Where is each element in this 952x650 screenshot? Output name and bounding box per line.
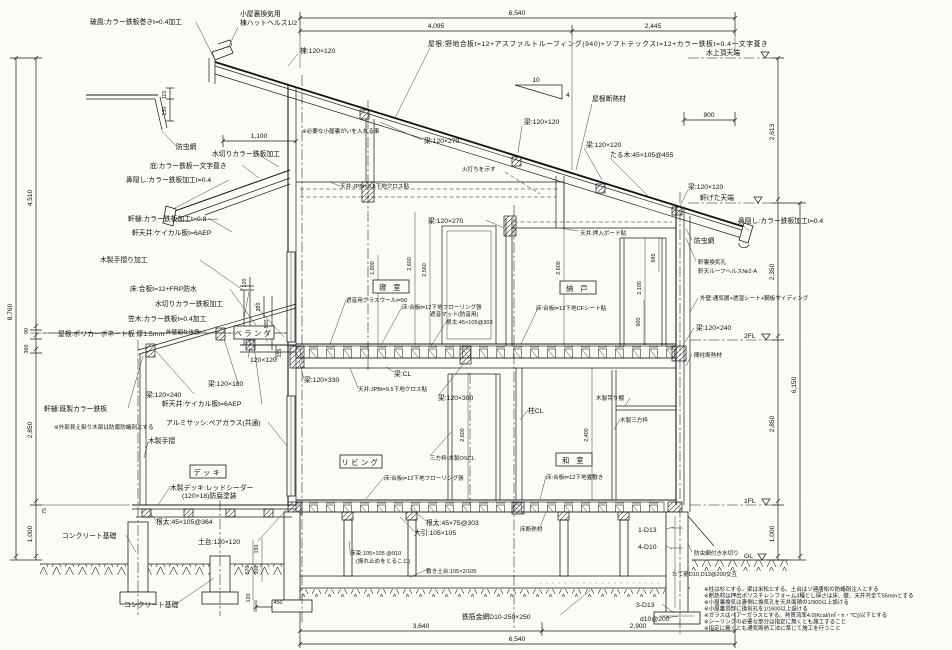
label-tatekin: たて筋D10,D13@200交互 — [672, 570, 737, 578]
level-nokigeta: 軒げた天端 — [700, 193, 734, 202]
label-kasagi: 笠木:カラー鉄板t=0.4加工 — [128, 314, 207, 323]
label-shikidodai: 敷き土台:105×2/105 — [426, 567, 477, 575]
dim-found-570: 570 — [245, 566, 251, 575]
label-beam-120x300: 梁:120×300 — [438, 393, 474, 402]
level-gl: GL — [744, 553, 753, 560]
label-beam-120x270-b: 梁:120×270 — [428, 216, 464, 225]
dim-left-8760: 8,760 — [7, 303, 14, 320]
label-nokitenjo-deck: 軒天井:ケイカル板t=6AEP — [162, 399, 242, 408]
label-floor-2f-1: 床:合板t=12下地フローリング張 — [402, 303, 482, 311]
label-deck-spec-1: 木製デッキ:レッドシーダー — [170, 483, 254, 492]
label-beam-120x240-right: 梁:120×240 — [696, 323, 732, 332]
label-beam-120x240-left: 梁:120×240 — [146, 390, 182, 399]
label-tatami-floor: 床:合板t=12下地畳敷き — [546, 473, 603, 481]
label-post-120x120: 120×120 — [250, 357, 277, 364]
note-line-2: ※断熱材は押出ポリスチレンフォーム3種とし厚さは床、壁、天井共全て55mmとする — [704, 592, 913, 600]
label-gaiheki-note: 外壁廻り注意 — [166, 328, 200, 336]
dim-canopy-115: 115 — [162, 91, 168, 100]
room-living: リビング — [342, 458, 381, 467]
label-nokitenjo-left: 軒天井:ケイカル板t=6AEP — [132, 228, 212, 237]
label-koyaura-vent-2: 棟ハットヘルス1/2 — [240, 18, 297, 27]
label-beam-120x120-b: 梁:120×120 — [586, 140, 622, 149]
label-roof-insulation: 屋根断熱材 — [592, 94, 626, 103]
room-nando: 納 戸 — [566, 284, 590, 293]
label-mizukiri-balcony: 水切りカラー鉄板加工 — [155, 299, 223, 308]
label-d10-200: d10@200 — [640, 616, 670, 623]
level-1fl: 1FL — [744, 498, 756, 505]
label-nokiura-1: 軒裏換気孔 — [698, 258, 726, 266]
dim-2f-2650: 2,650 — [407, 257, 413, 271]
dim-2f-2560: 2,560 — [422, 263, 428, 277]
dim-bottom-3640: 3,640 — [413, 623, 430, 630]
dim-2f-2600: 2,600 — [556, 261, 562, 275]
label-concrete-1: コンクリート基礎 — [62, 531, 117, 540]
dim-living-2600: 2,600 — [460, 428, 466, 442]
label-beam-120x180: 梁:120×180 — [208, 379, 244, 388]
dim-right-6150: 6,150 — [791, 376, 798, 393]
note-line-3: ※小屋裏換気は妻側に換気孔を天井面積の1/900以上設ける — [704, 598, 849, 606]
label-hanakakushi-right: 鼻隠し:カラー鉄板加工t=0.4 — [738, 216, 823, 225]
dim-left-75: 75 — [42, 508, 48, 514]
label-neda-4575: 根太:45×75@303 — [426, 518, 479, 527]
dim-bottom-2900: 2,900 — [630, 623, 647, 630]
dim-left-1000: 1,000 — [27, 525, 34, 542]
label-tesuri-kakou: 木製手摺り加工 — [100, 255, 148, 264]
dim-canopy-1100: 1,100 — [251, 133, 268, 140]
label-taruki: たる木:45×105@455 — [610, 150, 674, 159]
dim-top-4095: 4,095 — [428, 23, 445, 30]
level-mizukami: 水上頂天端 — [706, 48, 740, 57]
note-line-5: ※ガラスはペアーガラスとする。熱貫流率4.0(Kcal/(㎡・h・℃))以下とす… — [704, 611, 887, 619]
note-line-1: ※柱は杉とする。梁は米松とする。土台はソ連唐松の防蟻剤注入とする — [704, 585, 879, 593]
dim-right-1000: 1,000 — [769, 525, 776, 542]
label-ohiki: 大引:105×105 — [414, 528, 456, 537]
label-balcony-floor: 床:合板t=12+FRP防水 — [130, 284, 197, 293]
label-roof-spec: 屋根:野地合板t=12+アスファルトルーフィング(940)+ソフトテックスt=1… — [428, 39, 768, 48]
label-beam-cl: 梁:CL — [394, 369, 412, 378]
label-floor-cf: 床:合板t=12下地CFシート貼 — [536, 304, 607, 312]
label-bochumou-left: 防虫網 — [176, 142, 197, 151]
dim-found-150: 150 — [254, 545, 260, 554]
dim-canopy-230: 230 — [162, 107, 168, 116]
dim-balcony-800: 800 — [264, 320, 270, 329]
label-ext-wood-note: ※外部見え掛り木部は防腐防蟻剤とする — [54, 423, 154, 431]
dim-washitsu-2400: 2,400 — [584, 428, 590, 442]
label-beam-120x120-a: 梁:120×120 — [524, 117, 560, 126]
dim-balcony-120: 120 — [242, 279, 248, 288]
note-line-4: ※小屋裏頂部に換気孔を1/1600以上設ける — [704, 605, 808, 613]
label-mesh: 鉄筋金網D10-250×250 — [462, 612, 531, 621]
label-gaiheki: 外壁:通気層+透湿シート+鋼板サイディング — [700, 294, 809, 302]
label-sash: アルミサッシ:ペアガラス(共通) — [166, 418, 261, 427]
label-hashira-cl: 柱CL — [528, 406, 544, 415]
label-sanpo-oscl: 三方枠:木製OSCL — [430, 454, 475, 462]
label-floor-ins: 床断熱材 — [520, 525, 543, 533]
dim-balcony-320: 320 — [256, 303, 262, 312]
label-mizukiri-top: 水切りカラー鉄板加工 — [212, 149, 280, 158]
label-yukazuka-1: 床束:105×105 @910 — [350, 549, 401, 557]
room-deck: デッキ — [193, 468, 222, 477]
dim-slope-4: 4 — [566, 92, 570, 99]
level-2fl: 2FL — [744, 333, 756, 340]
dim-nando-2100: 2,100 — [637, 281, 643, 295]
dim-right-2613: 2,613 — [769, 123, 776, 140]
label-mizukiri-mushi: 防虫網付き水切り — [694, 549, 739, 557]
room-veranda: ベランダ — [235, 329, 274, 338]
label-dodai: 土台:120×120 — [198, 537, 240, 546]
dim-right-2850: 2,850 — [769, 415, 776, 432]
note-line-6: ※シーリングの必要な部分は指定に無くとも施工すること — [704, 618, 846, 626]
dim-top-2445: 2,445 — [645, 23, 662, 30]
label-yukazuka-2: (振れ止めをとること) — [356, 557, 410, 565]
dim-balcony-155: 155 — [277, 349, 283, 358]
label-ceiling-nando: 天井:押入ボード貼 — [580, 229, 627, 237]
dim-right-2350: 2,350 — [769, 263, 776, 280]
label-neda-364: 根太:45×105@364 — [156, 517, 213, 526]
dim-nando-685: 685 — [651, 254, 657, 263]
section-drawing-sheet: ベランダ 寝 室 納 戸 リビング 和 室 デッキ 破風:カラー鉄板巻きt=0.… — [0, 0, 952, 650]
dim-slope-10: 10 — [532, 77, 540, 84]
label-nokiura-2: 軒天ルーフヘルス№2-A — [698, 268, 757, 275]
label-floor-2f-2: 遮音マット(防音用) — [430, 310, 479, 318]
label-concrete-2: コンクリート基礎 — [124, 600, 179, 609]
label-beam-120x120-c: 梁:120×120 — [688, 182, 724, 191]
dim-left-360: 360 — [24, 345, 30, 354]
label-hiuchi: 火打ちを示す — [462, 165, 496, 173]
dim-found-120: 120 — [246, 594, 252, 603]
dim-left-4510: 4,510 — [27, 189, 34, 206]
label-attic-note: ※必要な小屋裏がいを入れる事 — [302, 127, 380, 135]
label-deck-spec-2: (120×18)防腐塗装 — [182, 491, 237, 500]
label-sanpo-wood: 木製三方枠 — [620, 416, 648, 424]
room-washitsu: 和 室 — [562, 456, 586, 465]
label-nokitoi-kisei: 軒樋:既製カラー鉄板 — [44, 404, 107, 413]
dim-2f-1800: 1,800 — [370, 261, 376, 275]
label-mabashira-ins: 間柱断熱材 — [694, 351, 722, 359]
label-nokitoi-08: 軒樋:カラー鉄板加工t=0.8 — [128, 214, 207, 223]
label-tesuri: 木製手摺 — [148, 436, 175, 445]
label-ceiling-2f: 天井:JPBt=9.5下地クロス貼 — [340, 182, 410, 190]
dim-bottom-6540: 6,540 — [509, 636, 526, 643]
label-hanakakushi-left: 鼻隠し:カラー鉄板加工t=0.4 — [126, 175, 211, 184]
label-tsuridana: 木製吊り棚 — [596, 394, 624, 402]
label-beam-120x330: 梁:120×330 — [304, 375, 340, 384]
note-line-7: ※指定に無くとも通気断熱工法に準じて施工を行うこと — [704, 624, 841, 632]
dim-left-2850: 2,850 — [27, 421, 34, 438]
label-hisashi: 庇:カラー鉄板一文字葺き — [150, 161, 227, 170]
dim-left-90: 90 — [24, 328, 30, 334]
label-ridge-beam: 棟:120×120 — [300, 46, 336, 55]
dim-top-6540: 6,540 — [509, 10, 526, 17]
label-gw50: 遮音用グラスウールt=50 — [346, 296, 407, 304]
section-drawing: ベランダ 寝 室 納 戸 リビング 和 室 デッキ 破風:カラー鉄板巻きt=0.… — [0, 0, 952, 650]
label-hafu: 破風:カラー鉄板巻きt=0.4加工 — [90, 17, 182, 26]
label-floor-1f: 床:合板t=12下地フローリング張 — [384, 474, 464, 482]
dim-found-450: 450 — [274, 600, 283, 606]
label-ceiling-1f: 天井:JPBt=9.5下地クロス貼 — [358, 385, 428, 393]
label-polycarb: 屋根:ポリカーボネート板 厚1.5mm — [58, 329, 164, 338]
dim-found-300: 300 — [254, 566, 260, 575]
label-3d13: 3-D13 — [636, 602, 655, 609]
label-neda-303: 根太:45×105@303 — [446, 318, 493, 326]
label-bochumou-right: 防虫網 — [694, 236, 715, 245]
room-bedroom: 寝 室 — [379, 283, 403, 292]
label-beam-120x270-a: 梁:120×270 — [424, 136, 460, 145]
label-4d10: 4-D10 — [638, 544, 657, 551]
dim-right-900: 900 — [703, 112, 714, 119]
dim-nando-900: 900 — [636, 318, 642, 327]
label-koyaura-vent-1: 小屋裏換気用 — [240, 9, 281, 18]
label-1d13: 1-D13 — [638, 527, 657, 534]
